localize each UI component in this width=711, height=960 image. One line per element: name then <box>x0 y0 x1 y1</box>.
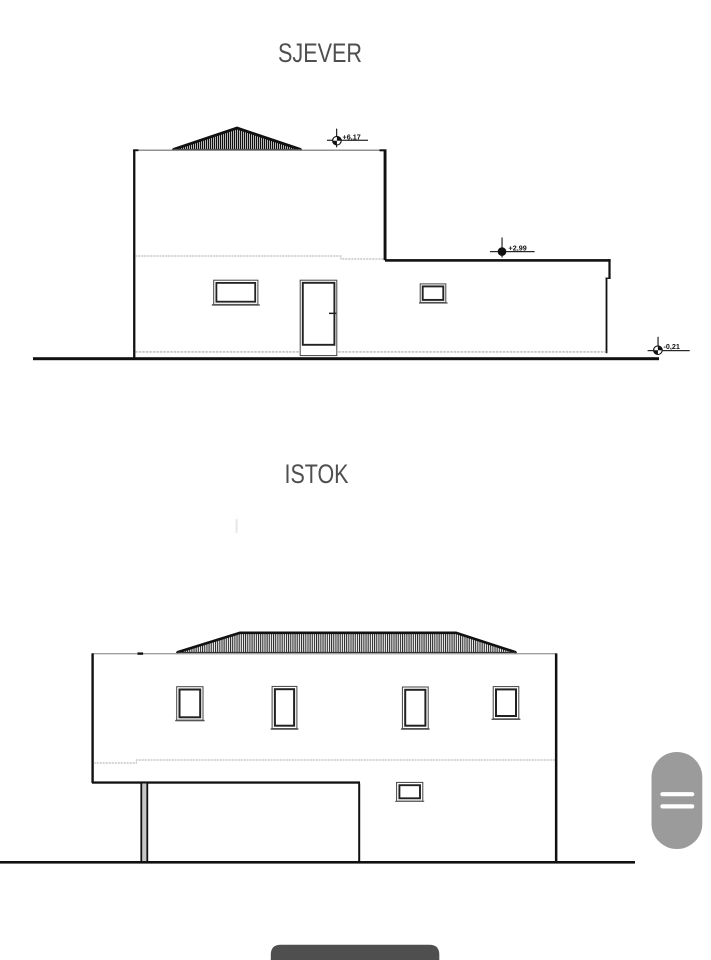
svg-text:SJEVER: SJEVER <box>278 38 362 68</box>
svg-text:-0,21: -0,21 <box>664 342 680 351</box>
svg-text:+2,99: +2,99 <box>509 244 527 253</box>
svg-text:ISTOK: ISTOK <box>285 459 349 489</box>
svg-text:+6,17: +6,17 <box>343 132 361 141</box>
